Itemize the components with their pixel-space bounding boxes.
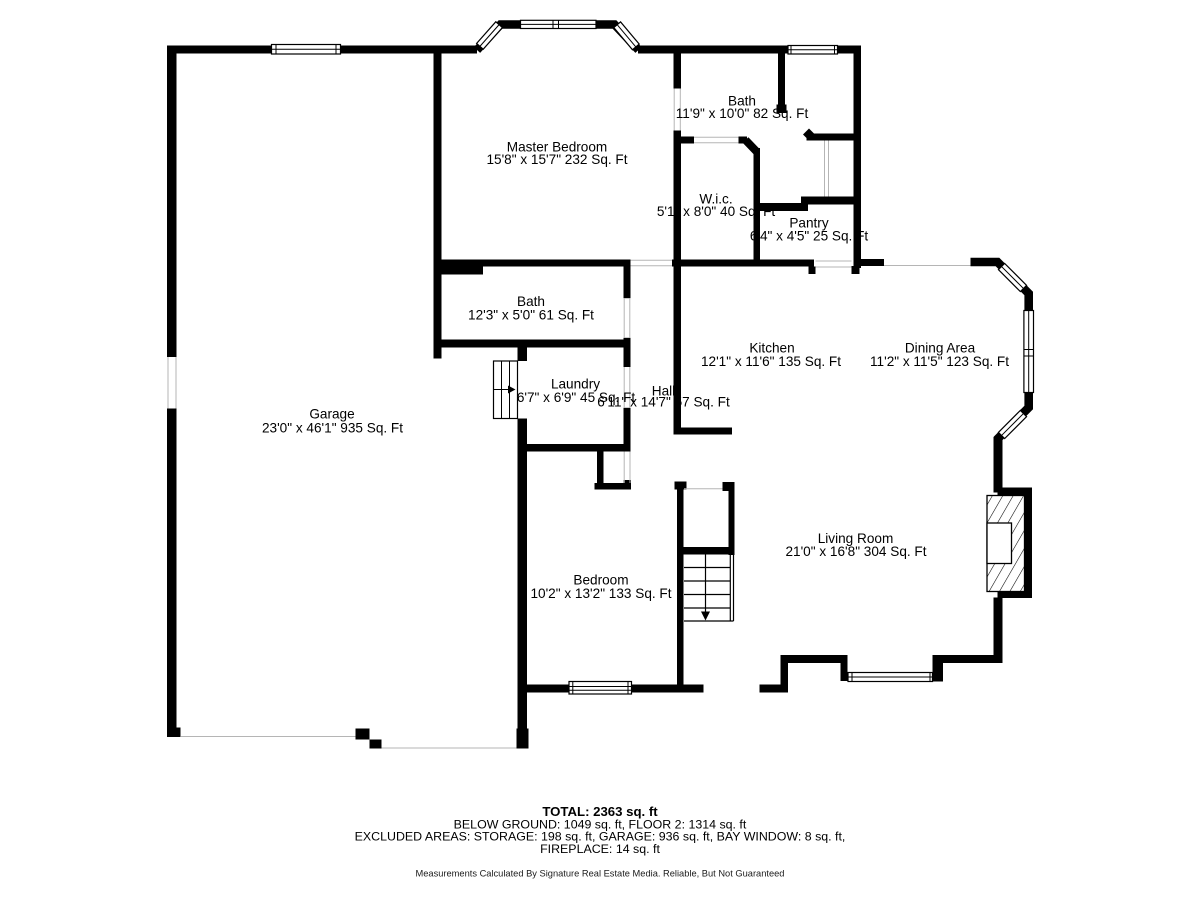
- svg-text:23'0" x 46'1" 935 Sq. Ft: 23'0" x 46'1" 935 Sq. Ft: [262, 421, 403, 436]
- svg-text:15'8" x 15'7" 232 Sq. Ft: 15'8" x 15'7" 232 Sq. Ft: [486, 152, 627, 167]
- svg-text:12'3" x 5'0" 61 Sq. Ft: 12'3" x 5'0" 61 Sq. Ft: [468, 307, 594, 322]
- svg-text:FIREPLACE: 14 sq. ft: FIREPLACE: 14 sq. ft: [540, 842, 660, 856]
- svg-text:10'2" x 13'2" 133 Sq. Ft: 10'2" x 13'2" 133 Sq. Ft: [530, 586, 671, 601]
- svg-text:11'2" x 11'5" 123 Sq. Ft: 11'2" x 11'5" 123 Sq. Ft: [870, 354, 1009, 369]
- svg-text:11'9" x 10'0" 82 Sq. Ft: 11'9" x 10'0" 82 Sq. Ft: [676, 106, 809, 121]
- svg-text:Garage: Garage: [309, 407, 354, 422]
- svg-text:6'11" x 14'7" 57 Sq. Ft: 6'11" x 14'7" 57 Sq. Ft: [597, 395, 730, 410]
- svg-text:12'1" x 11'6" 135 Sq. Ft: 12'1" x 11'6" 135 Sq. Ft: [701, 354, 841, 369]
- svg-text:21'0" x 16'8" 304 Sq. Ft: 21'0" x 16'8" 304 Sq. Ft: [785, 544, 926, 559]
- svg-text:6'4" x 4'5" 25 Sq. Ft: 6'4" x 4'5" 25 Sq. Ft: [750, 229, 869, 244]
- svg-text:Measurements Calculated By Sig: Measurements Calculated By Signature Rea…: [416, 869, 785, 879]
- svg-text:5'1" x 8'0" 40 Sq. Ft: 5'1" x 8'0" 40 Sq. Ft: [657, 204, 776, 219]
